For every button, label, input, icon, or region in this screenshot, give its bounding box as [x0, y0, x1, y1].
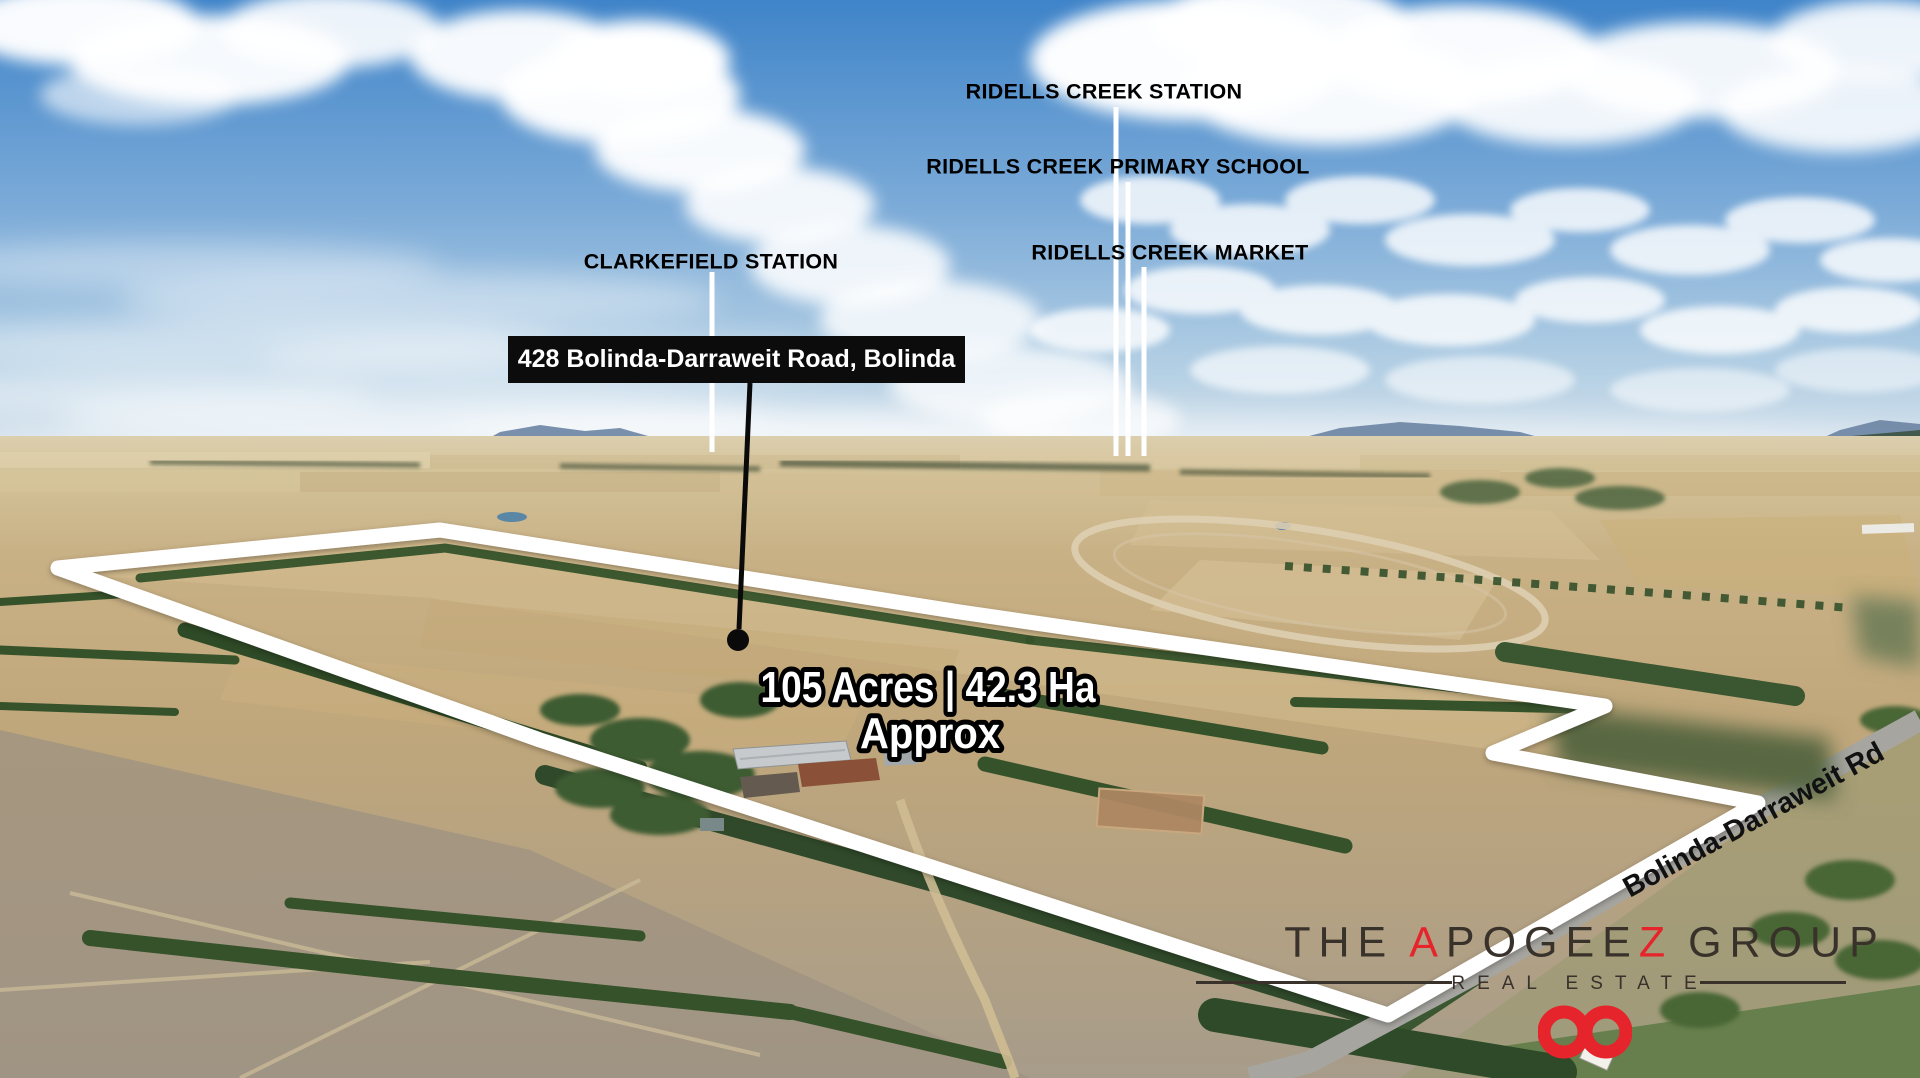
address-text: 428 Bolinda-Darraweit Road, Bolinda — [518, 345, 956, 374]
logo-word-brand: APOGEEZ — [1409, 919, 1673, 968]
label-ridells-creek-market: RIDELLS CREEK MARKET — [1031, 241, 1308, 266]
road-label: Bolinda-Darraweit Rd — [1618, 736, 1890, 904]
aerial-property-photo: 105 Acres | 42.3 Ha Approx Bolinda-Darra… — [0, 0, 1920, 1078]
label-ridells-creek-primary-school: RIDELLS CREEK PRIMARY SCHOOL — [926, 155, 1309, 180]
property-marker-dot — [727, 629, 749, 651]
logo-word-group: GROUP — [1688, 919, 1886, 968]
logo-letters-pogee: POGEE — [1446, 919, 1639, 967]
tagline-left-rule — [1196, 981, 1452, 984]
address-banner: 428 Bolinda-Darraweit Road, Bolinda — [508, 336, 965, 383]
area-text: 105 Acres | 42.3 Ha — [761, 663, 1096, 713]
area-text-group: 105 Acres | 42.3 Ha Approx — [761, 663, 1096, 758]
agency-logo-tagline: REAL ESTATE — [1451, 973, 1708, 995]
infinity-logo-icon — [1538, 1000, 1632, 1064]
logo-letter-a: A — [1409, 919, 1446, 967]
address-pointer-line — [739, 383, 750, 629]
label-ridells-creek-station: RIDELLS CREEK STATION — [966, 80, 1243, 105]
area-qualifier-text: Approx — [860, 709, 1000, 758]
address-pointer — [727, 383, 750, 651]
logo-letter-z: Z — [1639, 919, 1673, 967]
tagline-right-rule — [1700, 981, 1846, 984]
logo-word-the: THE — [1284, 919, 1394, 968]
label-clarkefield-station: CLARKEFIELD STATION — [584, 250, 839, 275]
agency-logo-wordmark: THE APOGEEZ GROUP — [1284, 919, 1886, 968]
